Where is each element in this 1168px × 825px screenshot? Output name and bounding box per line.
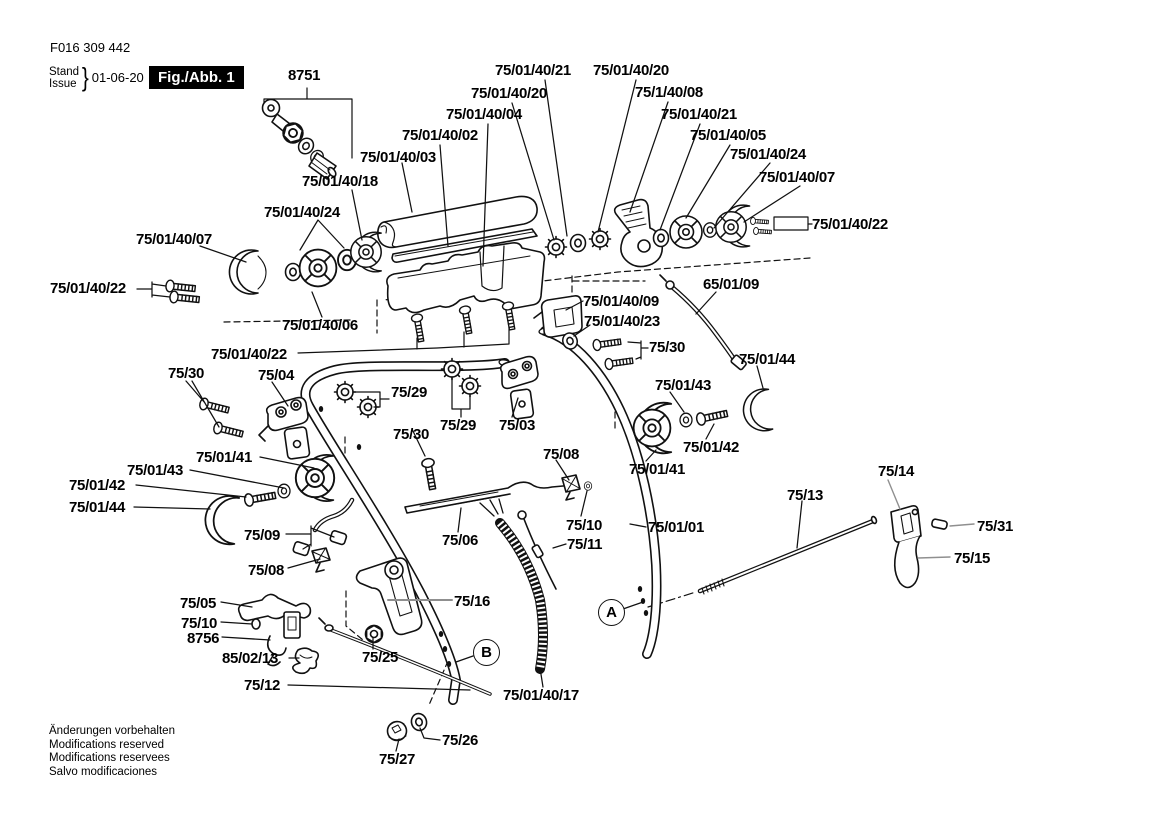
part-label: 75/01/40/22 [50, 281, 126, 296]
part-label: 75/01/40/20 [471, 86, 547, 101]
part-label: 75/01/40/24 [264, 205, 340, 220]
parts-diagram-page: F016 309 442 Stand Issue } 01-06-20 Fig.… [0, 0, 1168, 825]
part-label: 75/01/40/05 [690, 128, 766, 143]
footer-notes: Änderungen vorbehalten Modifications res… [49, 725, 175, 779]
part-label: 75/30 [393, 427, 429, 442]
footer-line-de: Änderungen vorbehalten [49, 725, 175, 739]
detail-marker-a: A [598, 599, 625, 626]
part-label: 75/15 [954, 551, 990, 566]
part-label: 75/01/40/22 [211, 347, 287, 362]
part-label: 75/26 [442, 733, 478, 748]
part-label: 75/05 [180, 596, 216, 611]
part-label: 75/01/40/03 [360, 150, 436, 165]
part-label: 75/01/40/09 [583, 294, 659, 309]
part-label: 65/01/09 [703, 277, 759, 292]
part-label: 75/29 [391, 385, 427, 400]
part-label: 75/01/40/20 [593, 63, 669, 78]
part-label: 8751 [288, 68, 320, 83]
part-label: 75/01/40/21 [661, 107, 737, 122]
part-label: 75/01/40/18 [302, 174, 378, 189]
footer-line-es: Salvo modificaciones [49, 766, 175, 780]
part-label: 85/02/13 [222, 651, 278, 666]
part-label: 75/08 [543, 447, 579, 462]
part-label: 75/01/40/22 [812, 217, 888, 232]
part-label: 75/30 [168, 366, 204, 381]
part-label: 75/12 [244, 678, 280, 693]
part-label: 75/01/40/06 [282, 318, 358, 333]
part-label: 75/13 [787, 488, 823, 503]
part-label: 75/01/40/02 [402, 128, 478, 143]
part-label: 75/08 [248, 563, 284, 578]
part-label: 75/01/40/23 [584, 314, 660, 329]
part-label: 75/01/43 [655, 378, 711, 393]
part-label: 75/01/43 [127, 463, 183, 478]
part-label: 75/04 [258, 368, 294, 383]
part-label: 75/01/41 [196, 450, 252, 465]
part-label: 75/01/41 [629, 462, 685, 477]
part-label: 75/1/40/08 [635, 85, 703, 100]
part-label: 75/10 [566, 518, 602, 533]
part-label: 75/01/40/07 [759, 170, 835, 185]
part-label: 75/01/01 [648, 520, 704, 535]
part-label: 75/11 [567, 537, 602, 552]
part-label: 75/09 [244, 528, 280, 543]
part-label: 75/25 [362, 650, 398, 665]
part-label: 75/01/40/07 [136, 232, 212, 247]
part-label: 75/10 [181, 616, 217, 631]
part-label: 75/01/42 [69, 478, 125, 493]
part-label: 75/14 [878, 464, 914, 479]
part-label: 75/01/40/04 [446, 107, 522, 122]
part-label: 75/16 [454, 594, 490, 609]
labels-layer: 875175/01/40/2175/01/40/2075/01/40/2075/… [0, 0, 1168, 825]
part-label: 75/29 [440, 418, 476, 433]
part-label: 75/01/40/24 [730, 147, 806, 162]
part-label: 75/01/40/21 [495, 63, 571, 78]
footer-line-fr: Modifications reservees [49, 752, 175, 766]
part-label: 75/27 [379, 752, 415, 767]
part-label: 8756 [187, 631, 219, 646]
part-label: 75/01/40/17 [503, 688, 579, 703]
part-label: 75/01/44 [69, 500, 125, 515]
part-label: 75/31 [977, 519, 1013, 534]
part-label: 75/01/44 [739, 352, 795, 367]
part-label: 75/30 [649, 340, 685, 355]
part-label: 75/03 [499, 418, 535, 433]
part-label: 75/01/42 [683, 440, 739, 455]
footer-line-en: Modifications reserved [49, 739, 175, 753]
detail-marker-b: B [473, 639, 500, 666]
part-label: 75/06 [442, 533, 478, 548]
